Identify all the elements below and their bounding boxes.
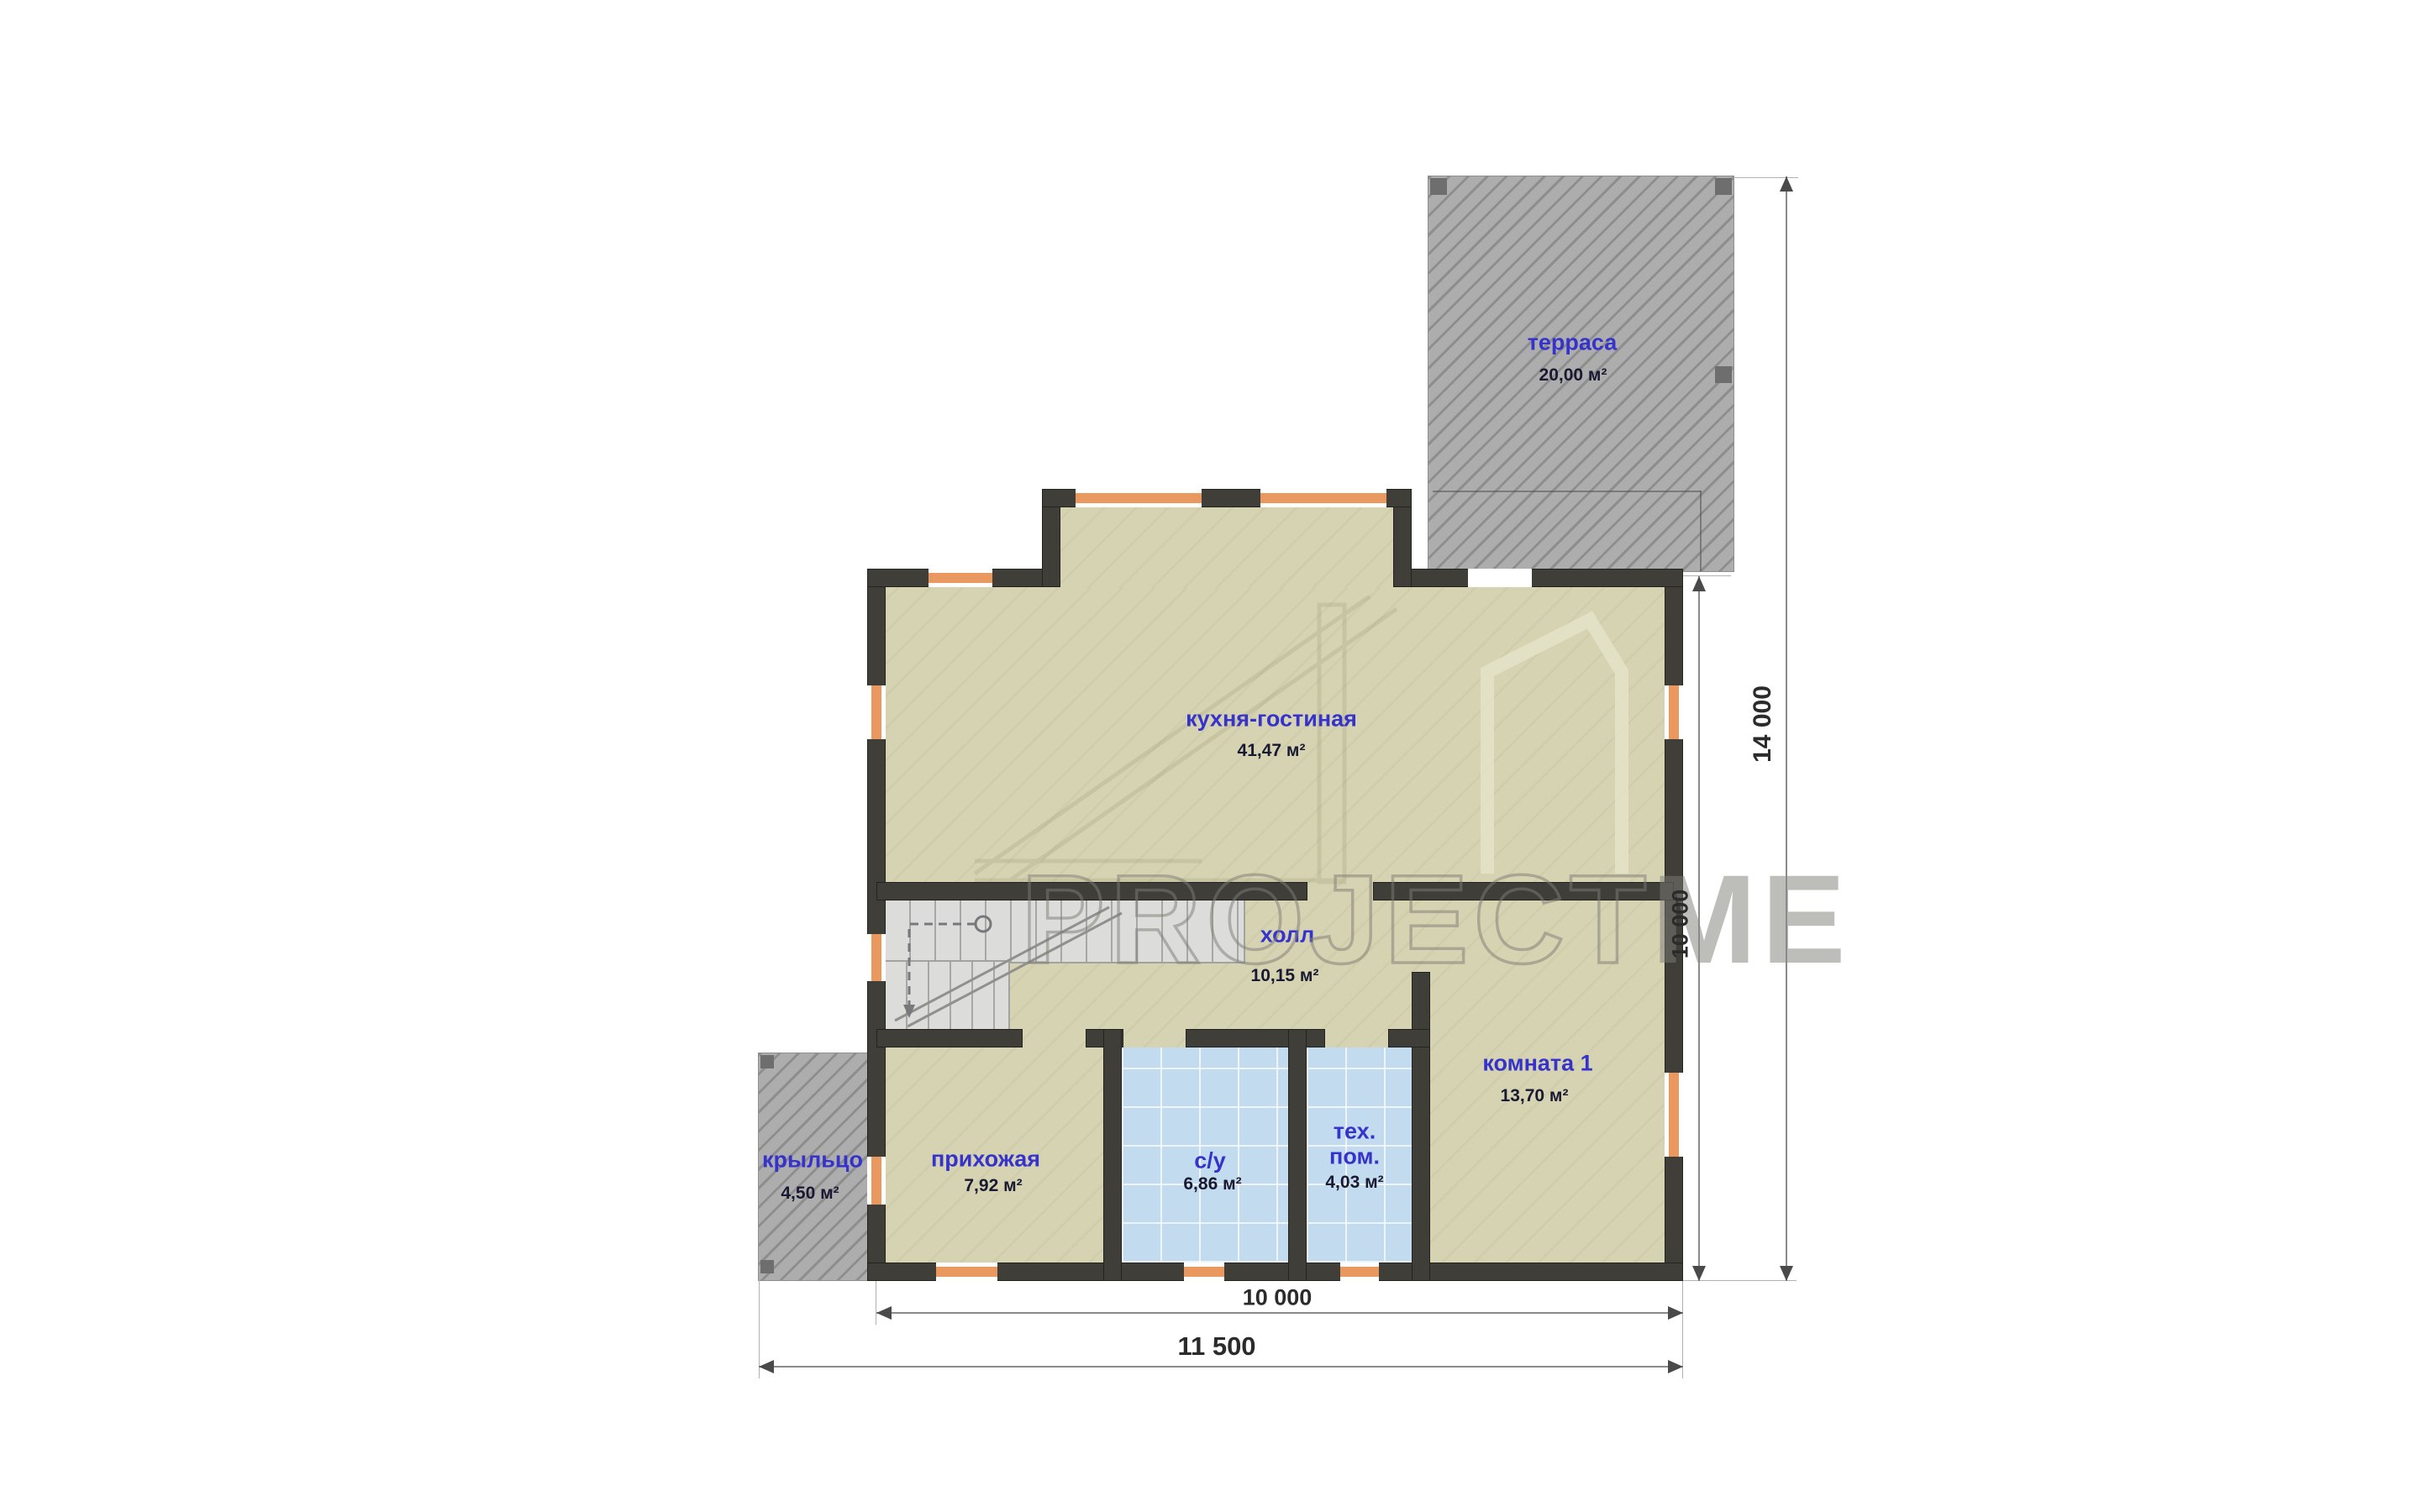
entry-door-left bbox=[867, 1157, 886, 1205]
dim-arrow bbox=[1692, 1266, 1706, 1281]
tech-room-area: 4,03 м² bbox=[1325, 1173, 1383, 1193]
wall-top-right bbox=[1402, 569, 1683, 587]
watermark-project-text: PROJECT bbox=[1021, 848, 1651, 990]
projectme-watermark: PROJECTME bbox=[1021, 847, 1850, 992]
floor-plan-canvas: терраса 20,00 м² кухня-гостиная 41,47 м²… bbox=[0, 0, 2420, 1512]
terrace-roof-line bbox=[1433, 491, 1702, 492]
dim-value-bottom-outer: 11 500 bbox=[1177, 1331, 1255, 1362]
wall-hall-lower-4 bbox=[1388, 1029, 1430, 1047]
window-bay-2 bbox=[1260, 489, 1386, 507]
dim-line-right-inner bbox=[1698, 576, 1700, 1281]
wall-hall-room1 bbox=[1412, 972, 1430, 1281]
hallway-label: прихожая bbox=[931, 1147, 1040, 1173]
kitchen-living-label: кухня-гостиная bbox=[1186, 706, 1357, 732]
wall-hallway-bathroom bbox=[1103, 1029, 1122, 1281]
wall-bathroom-tech bbox=[1288, 1029, 1307, 1281]
tech-room-label-line2: пом. bbox=[1329, 1144, 1380, 1170]
bathroom-area: 6,86 м² bbox=[1183, 1174, 1241, 1194]
dim-line-bottom-inner bbox=[876, 1312, 1683, 1314]
room1-area: 13,70 м² bbox=[1501, 1086, 1569, 1106]
dim-value-right-inner: 10 000 bbox=[1668, 890, 1694, 959]
terrace-post bbox=[1430, 178, 1447, 195]
tech-room-label-line1: тех. bbox=[1334, 1119, 1376, 1145]
dim-arrow bbox=[1692, 576, 1706, 591]
window-bay-1 bbox=[1076, 489, 1202, 507]
dim-arrow bbox=[759, 1360, 774, 1373]
dim-arrow bbox=[1780, 176, 1793, 192]
window-top-left bbox=[929, 569, 992, 587]
porch-post bbox=[760, 1055, 774, 1068]
dim-arrow bbox=[1668, 1360, 1683, 1373]
dim-line-bottom-outer bbox=[759, 1366, 1683, 1368]
window-room1-right bbox=[1665, 1073, 1683, 1157]
porch-label: крыльцо bbox=[762, 1147, 863, 1173]
bathroom-label: с/у bbox=[1194, 1148, 1226, 1174]
terrace-door-opening bbox=[1468, 569, 1532, 587]
dim-arrow bbox=[1780, 1266, 1793, 1281]
extension-line bbox=[1683, 575, 1731, 576]
terrace-post bbox=[1715, 366, 1732, 383]
terrace-post bbox=[1715, 178, 1732, 195]
dim-line-right-outer bbox=[1786, 176, 1787, 1281]
window-kitchen-left bbox=[867, 685, 886, 739]
kitchen-living-area: 41,47 м² bbox=[1238, 741, 1306, 761]
terrace-label: терраса bbox=[1528, 330, 1618, 356]
hallway-area: 7,92 м² bbox=[964, 1176, 1022, 1196]
window-stairs-left bbox=[867, 934, 886, 981]
terrace-area: 20,00 м² bbox=[1539, 365, 1607, 386]
dim-value-right-outer: 14 000 bbox=[1749, 685, 1777, 763]
window-hallway-bottom bbox=[936, 1263, 997, 1281]
window-kitchen-right bbox=[1665, 685, 1683, 739]
dim-arrow bbox=[876, 1306, 892, 1320]
terrace-roof-line bbox=[1700, 491, 1702, 571]
porch-area: 4,50 м² bbox=[781, 1184, 839, 1204]
porch-post bbox=[760, 1260, 774, 1273]
room1-label: комната 1 bbox=[1482, 1051, 1592, 1077]
wall-hall-lower-1 bbox=[876, 1029, 1023, 1047]
window-bathroom-bottom bbox=[1184, 1263, 1224, 1281]
window-tech-bottom bbox=[1340, 1263, 1379, 1281]
dim-arrow bbox=[1668, 1306, 1683, 1320]
dim-value-bottom-inner: 10 000 bbox=[1243, 1285, 1313, 1311]
